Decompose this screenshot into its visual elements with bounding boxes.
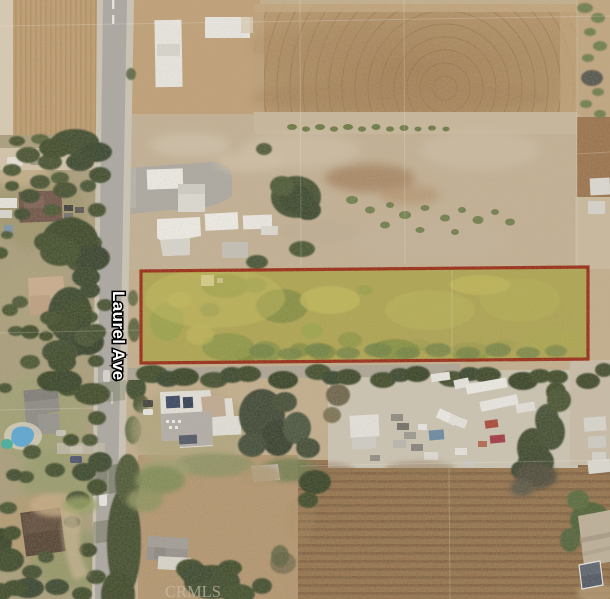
svg-text:CRMLS: CRMLS [165, 582, 221, 599]
svg-text:Laurel Ave: Laurel Ave [109, 291, 128, 381]
